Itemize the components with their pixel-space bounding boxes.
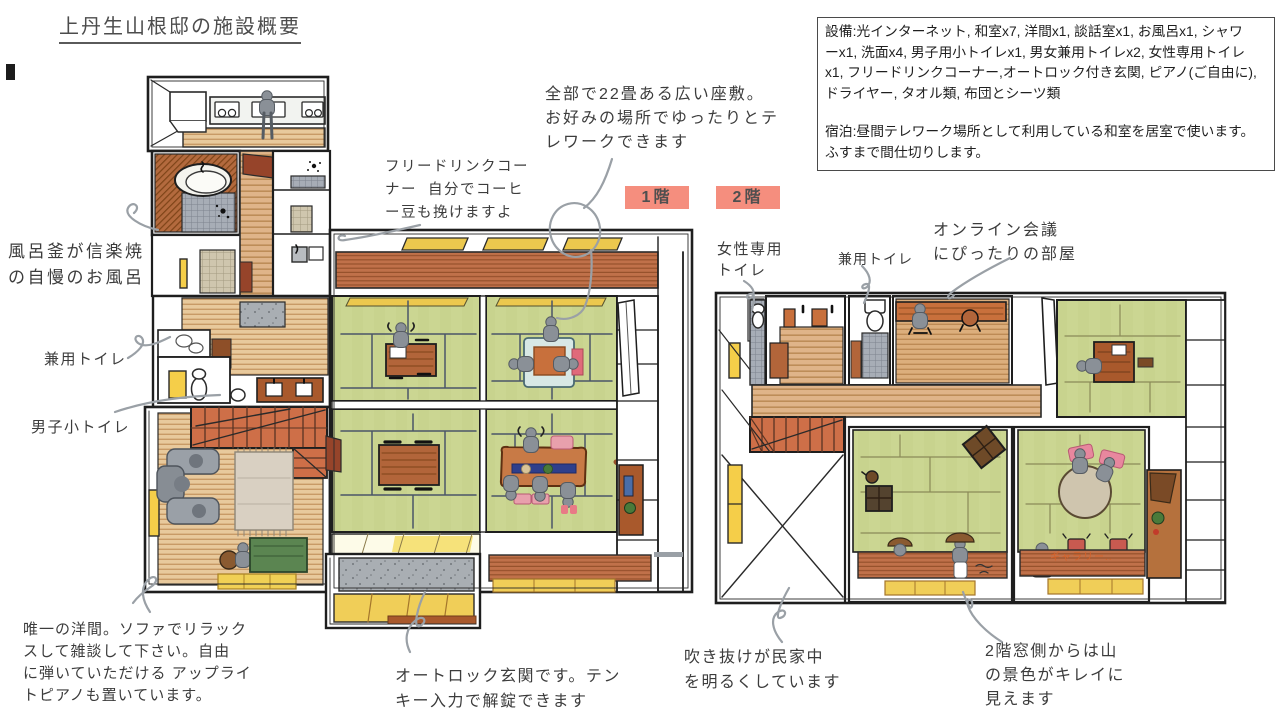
svg-text:ギャラリー..: ギャラリー.. <box>1050 551 1113 563</box>
